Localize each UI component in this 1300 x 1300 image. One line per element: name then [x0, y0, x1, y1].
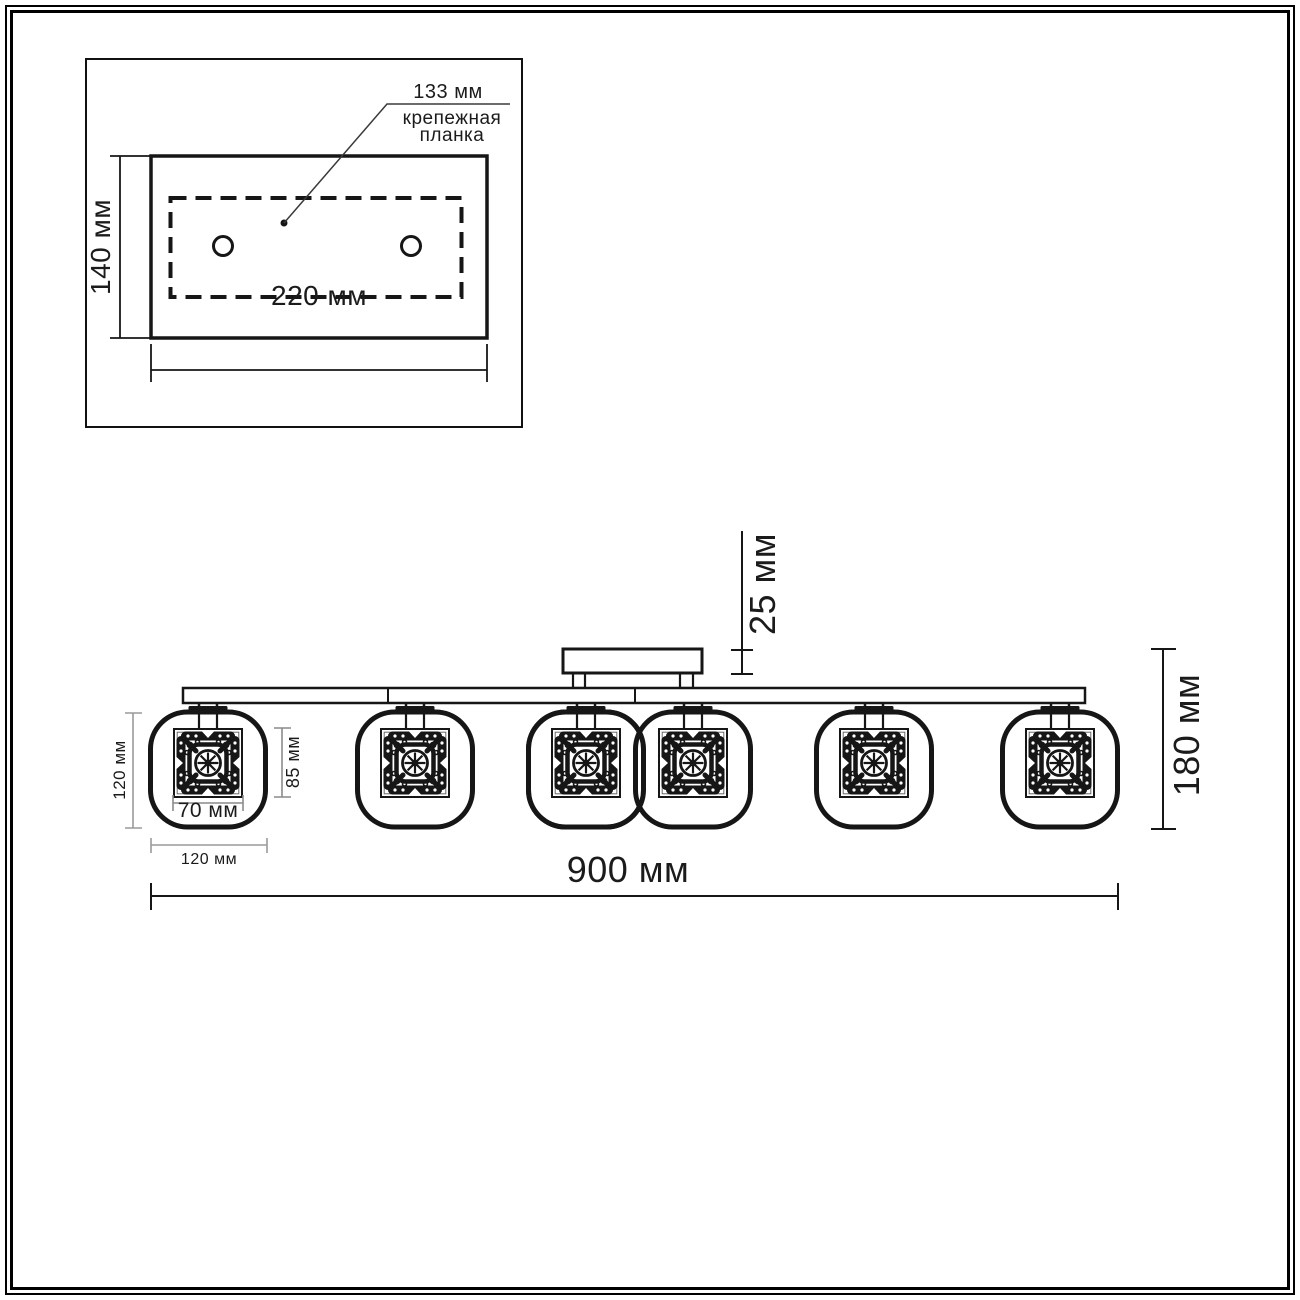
dim-label-shade-width: 120 мм — [159, 851, 259, 869]
dim-label-total-height: 180 мм — [1167, 665, 1207, 805]
lamp-shade — [636, 703, 751, 828]
dim-label-shade-height: 120 мм — [110, 725, 130, 815]
mounting-bar — [183, 688, 1085, 703]
dim-label-plate-height: 140 мм — [86, 187, 116, 307]
dim-label-total-width: 900 мм — [518, 850, 738, 890]
technical-drawing-page: 133 мм крепежная планка 140 мм 220 мм 25… — [0, 0, 1300, 1300]
mounting-strap-caption: крепежная планка — [382, 110, 522, 148]
dim-label-plate-strap-width: 133 мм — [388, 81, 508, 103]
dim-label-insert-width: 70 мм — [158, 800, 258, 822]
dim-label-plate-width: 220 мм — [239, 281, 399, 311]
dim-label-insert-height: 85 мм — [283, 722, 303, 802]
ceiling-canopy — [563, 649, 702, 688]
lamp-shade — [358, 703, 473, 828]
lamp-shade — [529, 703, 644, 828]
dim-label-canopy-height: 25 мм — [743, 524, 783, 644]
lamp-shade — [817, 703, 932, 828]
lamp-shade — [1003, 703, 1118, 828]
